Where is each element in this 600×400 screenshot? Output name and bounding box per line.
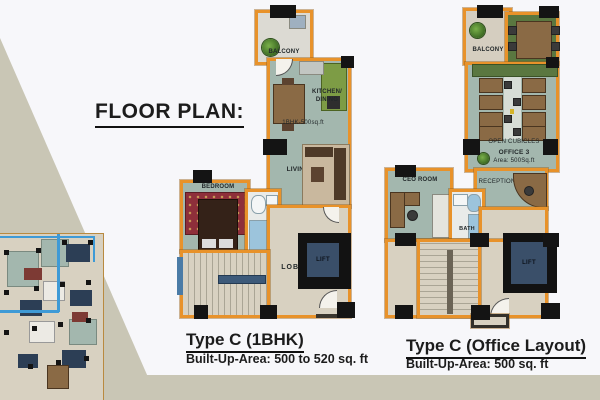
balcony-label: BALCONY <box>262 49 306 57</box>
thumb-furniture <box>24 268 42 280</box>
thumb-column <box>58 322 63 327</box>
thumb-column <box>60 282 65 287</box>
lift-shaft: LIFT <box>298 233 351 289</box>
bedroom-label: BEDROOM <box>193 184 243 192</box>
plan2-title: Type C (Office Layout) <box>406 336 586 359</box>
thumb-room <box>30 322 54 342</box>
thumb-column <box>34 286 39 291</box>
dining-table <box>274 85 304 123</box>
office-desk <box>480 113 502 126</box>
column <box>546 57 559 68</box>
column <box>471 305 490 320</box>
office-desk <box>480 96 502 109</box>
thumb-guide-line <box>0 236 95 238</box>
cabinet <box>433 195 450 237</box>
plan1-subtitle: Built-Up-Area: 500 to 520 sq. ft <box>186 352 368 366</box>
thumb-furniture <box>66 244 90 262</box>
ceo-desk <box>391 193 404 227</box>
lift-label: LIFT <box>511 242 547 284</box>
office-counter <box>473 65 557 76</box>
chair <box>509 43 516 50</box>
thumb-column <box>62 240 67 245</box>
aisle-item <box>510 109 514 114</box>
washbasin-icon <box>454 195 467 205</box>
stair-rail <box>447 250 453 314</box>
column <box>543 139 558 155</box>
chair <box>509 27 516 34</box>
balcony-room: BALCONY <box>255 10 313 65</box>
thumb-column <box>86 280 91 285</box>
office-area-label: Area: 500Sq.ft <box>486 158 542 166</box>
entrance-step <box>316 314 338 318</box>
thumb-column <box>4 290 9 295</box>
dining-chair <box>282 78 294 85</box>
bed <box>199 200 237 250</box>
stair-rail <box>219 276 265 283</box>
thumb-column <box>4 250 9 255</box>
door-arc <box>319 290 337 308</box>
chair <box>552 43 559 50</box>
column <box>541 303 560 319</box>
plan2-subtitle: Built-Up-Area: 500 sq. ft <box>406 357 548 371</box>
column <box>543 233 559 247</box>
column <box>260 305 277 319</box>
chair <box>505 82 511 88</box>
bath-label: BATH <box>454 226 480 233</box>
thumb-column <box>4 330 9 335</box>
thumb-guide-line <box>0 310 59 313</box>
balcony-label: BALCONY <box>466 47 510 55</box>
column <box>395 305 413 319</box>
toilet-icon <box>252 196 265 213</box>
column <box>337 302 355 318</box>
thumb-furniture <box>48 366 68 388</box>
reception-label: RECEPTION <box>478 179 516 187</box>
thumb-column <box>32 326 37 331</box>
thumb-furniture <box>20 300 42 316</box>
living-carpet <box>303 145 349 205</box>
sofa <box>334 148 346 200</box>
office-desk <box>523 113 545 126</box>
chair <box>505 116 511 122</box>
floor-plan-page: FLOOR PLAN: BALCONY KITCHEN/ DINING 1BHK… <box>0 0 600 400</box>
thumb-furniture <box>70 290 92 306</box>
thumbnail-floor-plan <box>0 234 103 400</box>
reception-room: RECEPTION <box>474 168 548 210</box>
column <box>341 56 354 68</box>
office-desk <box>480 79 502 92</box>
unit-area-label: 1BHK-500sq.ft <box>271 120 335 128</box>
pillow <box>219 239 233 248</box>
kitchen-living-room: KITCHEN/ DINING 1BHK-500sq.ft LIVING <box>267 58 351 208</box>
thumb-column <box>88 240 93 245</box>
plan1-title: Type C (1BHK) <box>186 330 304 353</box>
ceo-room-label: CEO ROOM <box>396 177 444 185</box>
thumb-column <box>84 356 89 361</box>
kitchen-sink-icon <box>300 62 323 74</box>
door-arc <box>323 207 339 223</box>
thumb-column <box>86 318 91 323</box>
plant-icon <box>470 23 485 38</box>
thumb-column <box>36 248 41 253</box>
washbasin-icon <box>267 196 277 205</box>
chair <box>552 27 559 34</box>
bedroom-room: BEDROOM <box>180 180 250 253</box>
thumb-column <box>28 364 33 369</box>
thumb-guide-line <box>57 234 60 312</box>
kitchen-label: KITCHEN/ DINING <box>304 89 350 104</box>
lift-label: LIFT <box>307 243 339 277</box>
column <box>263 139 287 155</box>
window <box>177 257 183 295</box>
thumb-guide-line <box>93 236 95 262</box>
pillow <box>202 239 216 248</box>
sofa <box>305 147 333 157</box>
office-desk <box>523 96 545 109</box>
thumb-room <box>70 320 96 344</box>
open-office-room: OPEN CUBICLES OFFICE 3 Area: 500Sq.ft <box>465 62 559 172</box>
column <box>477 5 503 18</box>
column <box>463 139 480 155</box>
office-name-label: OFFICE 3 <box>486 149 542 157</box>
door-arc <box>276 59 293 76</box>
column <box>539 6 559 18</box>
conference-table <box>517 22 551 58</box>
open-cubicles-label: OPEN CUBICLES <box>486 139 542 147</box>
thumb-column <box>56 360 61 365</box>
ceo-room: CEO ROOM <box>385 168 453 242</box>
column <box>470 233 489 247</box>
chair <box>514 99 520 105</box>
coffee-table <box>311 167 324 182</box>
office-desk <box>523 79 545 92</box>
column <box>395 233 416 246</box>
chair <box>408 211 417 220</box>
column <box>270 5 296 18</box>
column <box>395 165 416 177</box>
column <box>194 305 208 319</box>
column <box>193 170 212 183</box>
chair <box>525 187 533 195</box>
page-title: FLOOR PLAN: <box>95 100 244 128</box>
chair <box>514 129 520 135</box>
